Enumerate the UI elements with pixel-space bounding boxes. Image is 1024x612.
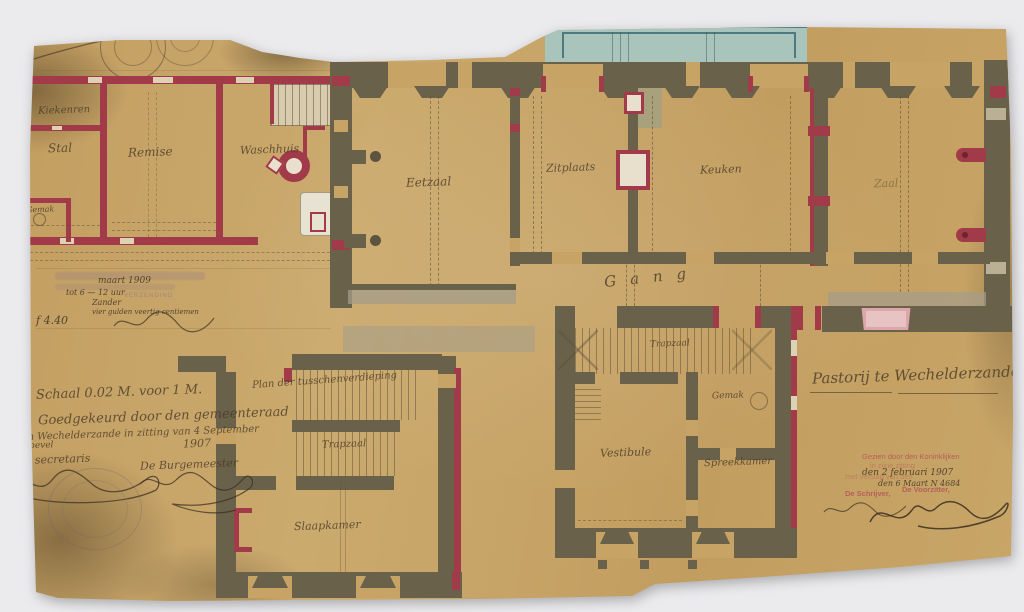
door-opening [334,120,348,132]
grating [270,84,332,126]
wall [332,76,350,86]
wall [216,84,223,245]
door-opening [750,64,808,88]
veranda-line [562,32,682,34]
dashed-line [20,252,330,254]
door-opening [686,500,698,516]
window-opening [236,77,254,83]
dashed-line [20,260,330,262]
veranda-line [714,32,715,62]
window-opening [88,77,102,83]
window-opening [458,62,472,88]
door-opening [120,238,134,244]
dashed-line [112,222,216,224]
signature [110,308,220,338]
door-opening [686,252,714,264]
door-opening [334,186,348,198]
handwritten-entry: den 2 februari 1907 [862,468,953,478]
room-label: Trapzaal [322,439,367,451]
round-stamp-inner-icon [62,480,128,538]
room-label: Slaapkamer [294,519,361,532]
veranda-line [620,32,621,62]
window-reveal [664,86,700,98]
wall [808,126,830,136]
wall [26,198,70,203]
door-jamb [713,306,719,328]
fireplace-stub [344,234,366,248]
door-jamb [599,76,604,92]
window-opening [153,77,173,83]
door-opening [543,64,603,88]
porch-post [640,560,649,569]
axis-line [430,96,432,286]
room-label: Stal [48,142,72,155]
wall-new-lining [454,368,461,590]
room-label: Keuken [700,163,742,175]
radiator-dot [962,152,968,158]
wall [178,356,226,372]
handwritten-entry: maart 1909 [98,276,151,286]
axis-line [533,96,535,254]
wall-new-lining [810,88,814,266]
plan-heading: Plan [443,45,473,60]
stone-steps [348,290,516,304]
door-opening [791,396,797,410]
radiator-dot [962,232,968,238]
door-frame [234,547,252,552]
axis-line [760,260,762,306]
door-opening [438,374,456,388]
window-opening [19,133,25,147]
door-jamb [748,76,753,92]
door-opening [686,420,698,436]
veranda-line [794,32,796,58]
signature [862,488,1012,548]
wall [620,372,678,384]
small-stair [575,384,601,420]
wall [565,372,595,384]
wall [66,198,71,242]
door-opening [826,252,854,264]
window-opening [388,62,446,88]
stove-grate [310,212,326,232]
pipe [303,126,325,130]
wall [18,76,333,84]
wall [26,125,100,131]
room-label: Waschhuis [240,143,299,156]
window-reveal [880,86,916,98]
axis-line [438,96,440,286]
radiator-icon [956,228,986,242]
window-opening [19,103,25,117]
approval-text: Bij bevel [14,441,54,451]
fixture-circle [750,392,768,410]
veranda-line [680,32,796,34]
fee-note: f 4.40 [36,314,68,327]
drawing-title: Pastorij te Wechelderzande [812,364,1020,386]
window-reveal [724,86,760,98]
door-jamb [541,76,546,92]
door-opening [791,340,797,356]
staircase [575,328,755,374]
wall [292,420,400,432]
axis-line [652,96,654,251]
wall [292,354,442,370]
porch-post [688,560,697,569]
dashed-line [148,92,150,237]
veranda-line [706,32,707,62]
room-label: Vestibule [600,446,652,459]
dashed-line [26,225,100,227]
veranda-line [612,32,613,62]
wall [510,88,520,96]
fireplace-stub [344,150,366,164]
radiator-icon [956,148,986,162]
wall [555,528,797,558]
stove-icon [624,92,644,114]
wall [452,572,460,590]
room-label: Eetzaal [406,175,452,189]
dashed-line [112,230,216,232]
fireplace-dot [370,151,381,162]
door-jamb [804,76,809,92]
wall [270,84,274,124]
scale-note: Schaal 0.02 M. voor 1 M. [36,383,203,402]
scanned-drawing-stage: N 4 Plan Kiekenren Stal Remise Waschhuis… [0,0,1024,612]
pencil-flourish [0,0,200,80]
room-label: Gemak [712,391,744,401]
window-reveal [944,86,980,98]
door-jamb [797,306,803,330]
door-opening [552,252,582,264]
window-opening [686,62,700,88]
window-opening [843,62,855,88]
handwritten-entry: Zander [92,298,121,307]
door-opening [555,470,575,488]
wall [100,84,107,245]
room-label: Zaal [874,178,899,190]
wall [510,124,520,132]
title-underline [810,392,892,393]
axis-line [541,96,543,254]
terrace-wash [343,326,535,352]
porch-post [598,560,607,569]
room-label: Gang [603,265,700,290]
dashed-line [156,92,158,237]
door-opening [52,126,62,130]
signature [132,468,272,518]
fireplace-dot [370,235,381,246]
window-reveal [414,86,450,98]
paper-sheet: N 4 Plan Kiekenren Stal Remise Waschhuis… [0,0,1024,612]
wall [617,306,717,328]
sheet-number: N 4 [84,13,114,30]
veranda-line [628,32,629,62]
window-opening [19,172,25,186]
wall [990,86,1006,98]
window-opening [890,62,950,88]
door-jamb [815,306,821,330]
room-label: Gemak [26,206,55,215]
stamp-text: Gezien door den Koninklijken [862,452,960,461]
fireplace-icon [616,150,650,190]
wall [808,196,830,206]
room-label: Trapzaal [650,339,690,349]
room-label: Spreekkamer [704,457,772,469]
stair-cross-mark [558,330,598,370]
window-wash-inner [866,311,906,327]
stair-cross-mark [732,330,772,370]
handwritten-entry: tot 6 — 12 uur [66,288,125,297]
door-opening [912,252,938,264]
room-label: Kiekenren [38,105,90,117]
veranda-line [562,32,564,58]
paper-shadow-wrap: N 4 Plan Kiekenren Stal Remise Waschhuis… [0,0,1024,612]
axis-line [790,96,792,251]
stamp-text: VERZENDING [124,293,173,299]
wall [18,84,26,244]
approval-year: 1907 [183,438,211,450]
title-underline [898,393,998,394]
room-label: Remise [128,145,173,159]
pencil-guideline [36,268,336,269]
wall [330,62,352,308]
window-opening [986,108,1006,120]
room-label: Zitplaats [546,161,596,174]
stone-steps [828,292,986,306]
window-reveal [352,86,388,98]
dashed-line [578,520,682,522]
